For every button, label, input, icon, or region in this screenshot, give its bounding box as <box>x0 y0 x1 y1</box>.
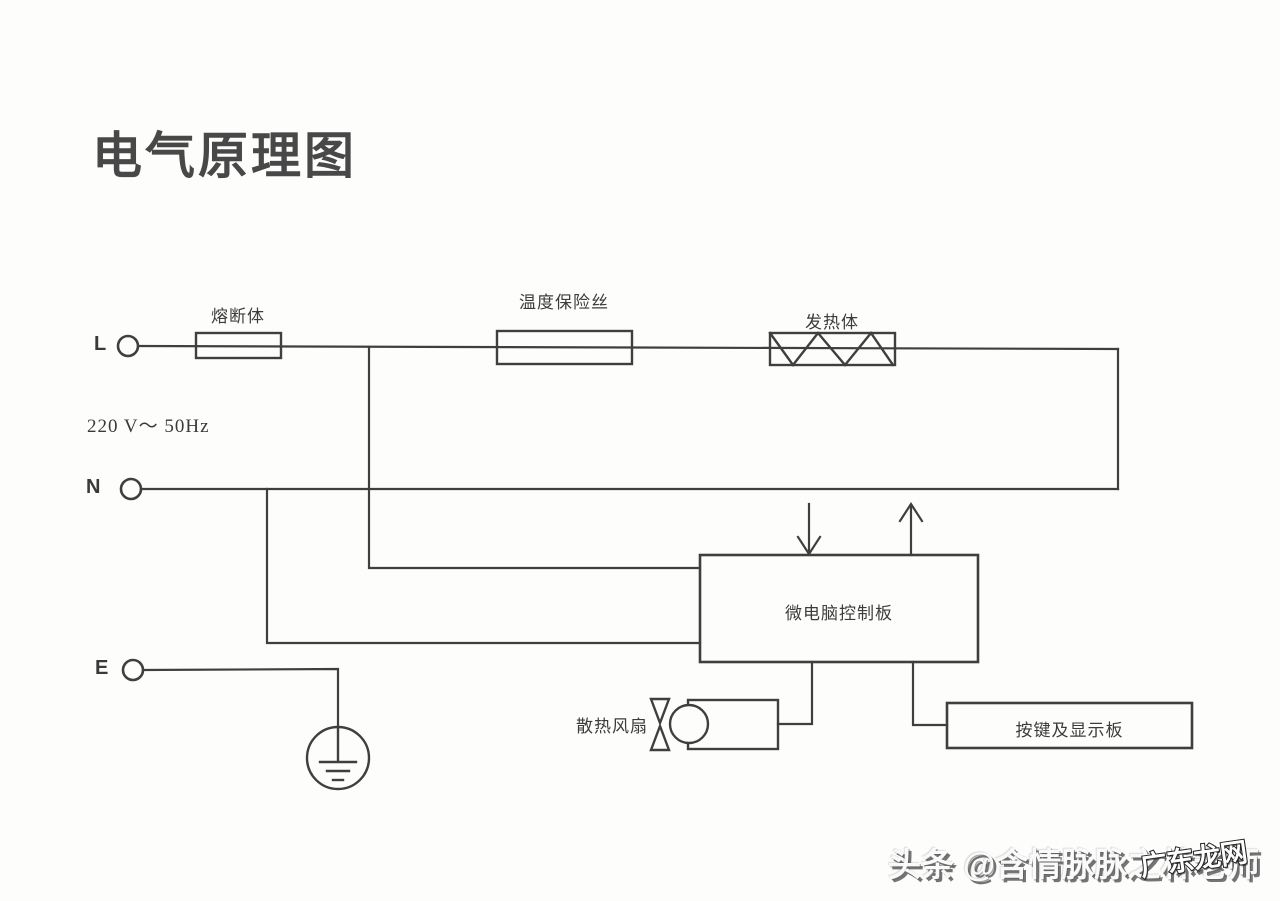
terminal-circle-live <box>118 336 138 356</box>
display-wire <box>913 662 947 725</box>
arrow-down-into-board <box>798 504 820 554</box>
control-board-label: 微电脑控制板 <box>700 599 978 624</box>
neutral-tap-wire <box>267 489 700 643</box>
fan-label: 散热风扇 <box>558 712 648 737</box>
terminal-circle-neutral <box>121 479 141 499</box>
earth-wire <box>143 669 338 727</box>
terminal-label-neutral: N <box>86 476 100 499</box>
scanned-schematic-page: 电气原理图 L N E 220 V～ 50Hz 熔断体 温度保险丝 发热体 微电… <box>0 0 1280 901</box>
arrow-up-out-of-board <box>900 504 922 555</box>
terminal-circle-earth <box>123 660 143 680</box>
fan-symbol <box>651 699 778 750</box>
page-title: 电气原理图 <box>92 116 357 188</box>
thermal-fuse-label: 温度保险丝 <box>484 288 644 313</box>
terminal-label-live: L <box>94 333 106 356</box>
terminal-label-earth: E <box>95 657 108 680</box>
power-rating-label: 220 V～ 50Hz <box>87 411 210 438</box>
heater-label: 发热体 <box>772 308 892 333</box>
ground-symbol <box>307 727 369 789</box>
display-board-label: 按键及显示板 <box>947 716 1192 741</box>
live-tap-wire <box>369 347 700 568</box>
fuse-label: 熔断体 <box>178 302 298 327</box>
live-wire <box>138 346 1118 489</box>
fan-wire <box>778 662 812 724</box>
